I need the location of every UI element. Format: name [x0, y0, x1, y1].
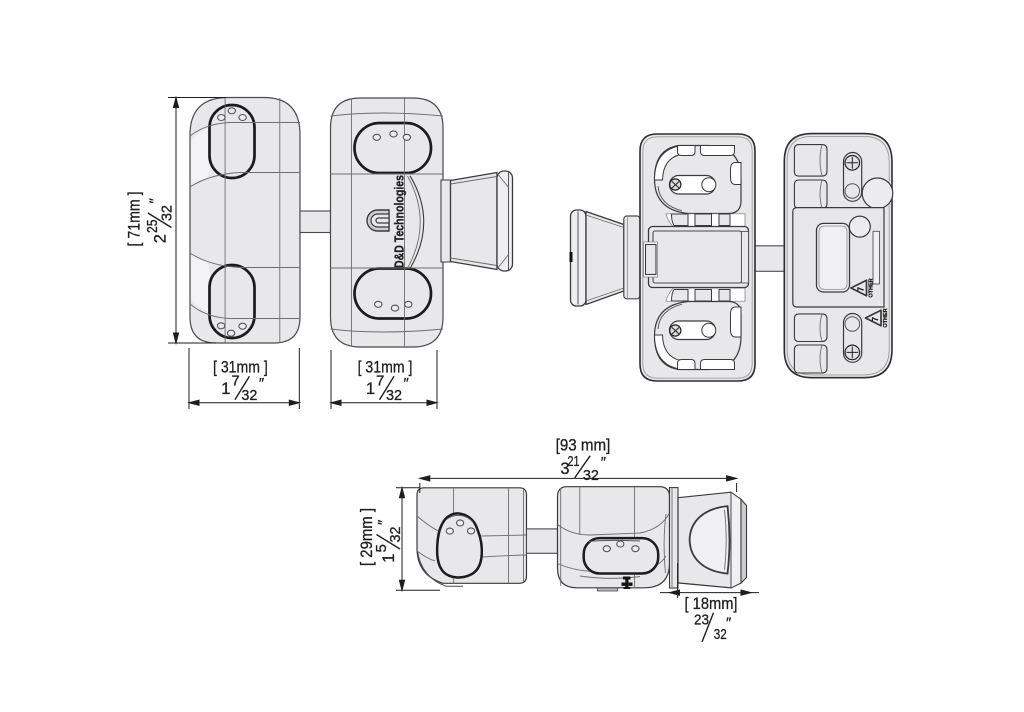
svg-text:[ 71mm ]: [ 71mm ] [124, 192, 143, 247]
svg-text:″: ″ [259, 375, 265, 392]
svg-text:32: 32 [386, 387, 402, 404]
svg-text:21: 21 [568, 453, 580, 470]
svg-text:[ 31mm ]: [ 31mm ] [213, 357, 268, 376]
svg-text:32: 32 [241, 387, 257, 404]
svg-text:32: 32 [583, 467, 599, 484]
svg-text:OTHER: OTHER [869, 278, 875, 297]
svg-text:[ 29mm ]: [ 29mm ] [357, 508, 376, 566]
svg-text:5: 5 [373, 544, 390, 552]
svg-text:32: 32 [159, 205, 176, 221]
svg-text:D&D Technologies: D&D Technologies [393, 175, 407, 268]
svg-text:″: ″ [146, 198, 163, 204]
svg-text:″: ″ [404, 375, 410, 392]
svg-text:23: 23 [694, 611, 709, 628]
svg-text:2: 2 [151, 234, 169, 243]
svg-text:32: 32 [387, 527, 404, 543]
svg-text:1: 1 [221, 380, 230, 398]
svg-text:7: 7 [871, 317, 880, 322]
svg-text:[93 mm]: [93 mm] [556, 435, 611, 454]
svg-text:1: 1 [366, 380, 375, 398]
svg-text:7: 7 [231, 373, 239, 390]
svg-text:OTHER: OTHER [883, 308, 889, 327]
svg-text:1: 1 [380, 554, 398, 563]
svg-text:32: 32 [714, 626, 727, 643]
svg-text:7: 7 [376, 373, 384, 390]
svg-text:″: ″ [601, 454, 607, 471]
svg-text:[ 31mm ]: [ 31mm ] [358, 357, 413, 376]
svg-text:″: ″ [726, 614, 732, 631]
svg-text:″: ″ [375, 519, 392, 525]
svg-text:[ 18mm]: [ 18mm] [685, 594, 738, 613]
svg-text:7: 7 [857, 287, 866, 292]
